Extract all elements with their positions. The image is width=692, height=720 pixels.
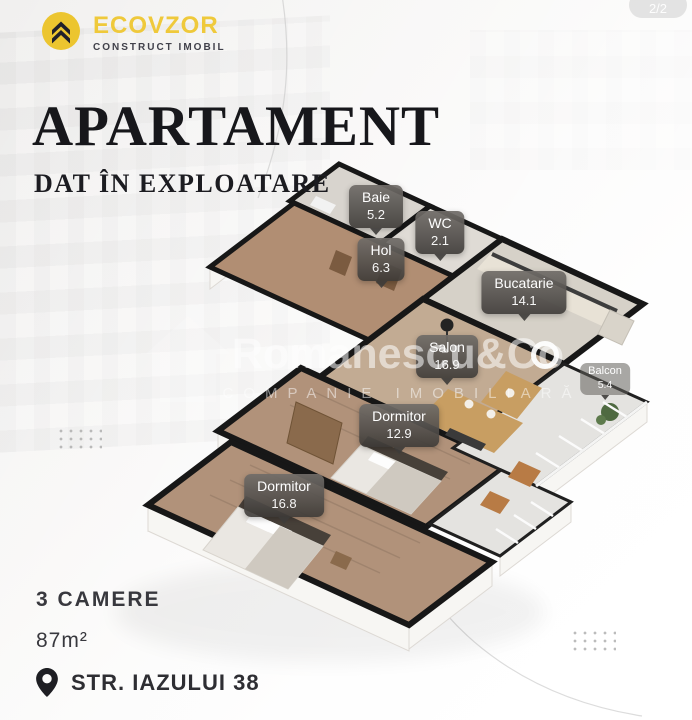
rooms-count: 3 CAMERE bbox=[36, 588, 260, 612]
room-name: WC bbox=[428, 215, 451, 233]
room-name: Hol bbox=[370, 242, 391, 260]
address-text: STR. IAZULUI 38 bbox=[71, 670, 260, 696]
page-subtitle: DAT ÎN EXPLOATARE bbox=[34, 169, 331, 199]
address-row: STR. IAZULUI 38 bbox=[36, 668, 260, 697]
room-name: Salon bbox=[429, 339, 465, 357]
sofa-pillow bbox=[487, 410, 496, 419]
logo-name: ECOVZOR bbox=[93, 14, 226, 38]
dot-grid-bottom-right bbox=[570, 629, 616, 655]
room-area: 5.4 bbox=[588, 379, 622, 392]
room-area: 5.2 bbox=[362, 207, 390, 223]
listing-image: 2/2 ECOVZOR CONSTRUCT IMOBIL APARTAMENT … bbox=[0, 0, 692, 720]
image-counter-badge: 2/2 bbox=[629, 0, 687, 18]
sofa-pillow bbox=[506, 389, 515, 398]
room-name: Dormitor bbox=[257, 478, 311, 496]
room-area: 16.9 bbox=[429, 357, 465, 373]
room-name: Baie bbox=[362, 189, 390, 207]
room-label-balcon: Balcon 5.4 bbox=[580, 363, 630, 395]
sofa-pillow bbox=[465, 400, 474, 409]
room-name: Bucatarie bbox=[494, 275, 553, 293]
logo-text: ECOVZOR CONSTRUCT IMOBIL bbox=[93, 12, 226, 53]
room-label-wc: WC 2.1 bbox=[415, 211, 464, 254]
surface-area: 87m² bbox=[36, 629, 260, 653]
page-title: APARTAMENT bbox=[32, 94, 440, 159]
room-label-bucatarie: Bucatarie 14.1 bbox=[481, 271, 566, 314]
double-chevron-up-icon bbox=[42, 12, 80, 50]
room-name: Dormitor bbox=[372, 408, 426, 426]
room-area: 2.1 bbox=[428, 233, 451, 249]
room-area: 6.3 bbox=[370, 260, 391, 276]
logo: ECOVZOR CONSTRUCT IMOBIL bbox=[42, 12, 226, 53]
room-area: 16.8 bbox=[257, 496, 311, 512]
room-area: 12.9 bbox=[372, 426, 426, 442]
room-label-dormitor-mic: Dormitor 12.9 bbox=[359, 404, 439, 447]
room-name: Balcon bbox=[588, 365, 622, 379]
room-label-dormitor-mare: Dormitor 16.8 bbox=[244, 474, 324, 517]
location-pin-icon bbox=[36, 668, 58, 697]
room-label-hol: Hol 6.3 bbox=[357, 238, 404, 281]
room-area: 14.1 bbox=[494, 293, 553, 309]
dot-grid-left bbox=[56, 427, 102, 453]
logo-tagline: CONSTRUCT IMOBIL bbox=[93, 42, 226, 53]
room-label-salon: Salon 16.9 bbox=[416, 335, 478, 378]
room-label-baie: Baie 5.2 bbox=[349, 185, 403, 228]
floor-lamp-dark bbox=[441, 319, 454, 332]
balcony-plant bbox=[596, 415, 606, 425]
listing-details: 3 CAMERE 87m² STR. IAZULUI 38 bbox=[36, 588, 260, 697]
watermark-house-icon bbox=[138, 302, 233, 412]
